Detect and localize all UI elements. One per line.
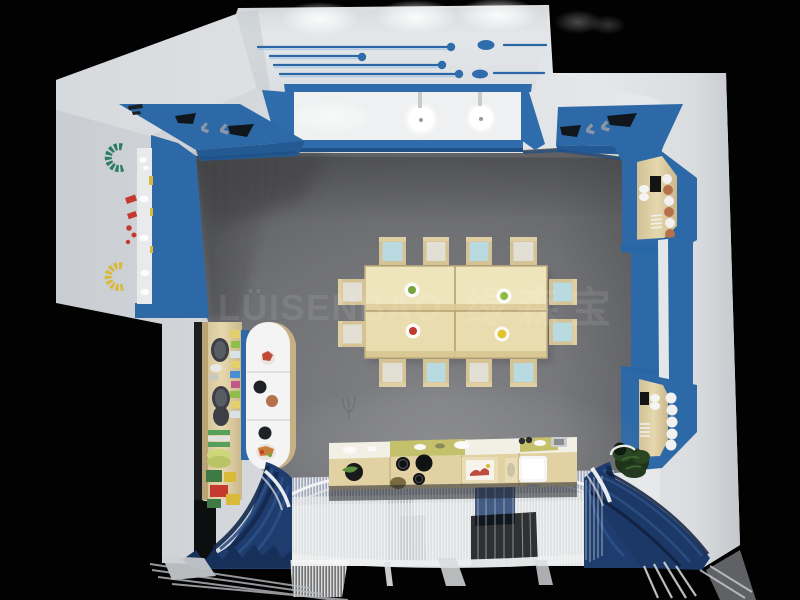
- svg-text:LÜISENBAO: LÜISENBAO: [218, 287, 444, 328]
- svg-text:绿森宝: 绿森宝: [465, 284, 621, 331]
